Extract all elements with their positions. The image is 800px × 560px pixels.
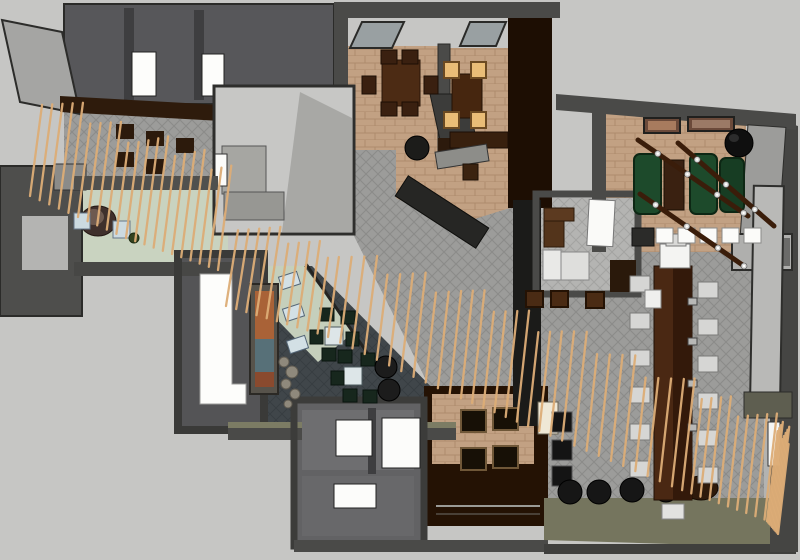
dining2-lit-chair — [444, 62, 459, 78]
rail-lamp-glow — [657, 152, 659, 154]
lounge-chair — [361, 353, 375, 366]
office-couch — [543, 250, 561, 280]
restroom-panel-3 — [334, 484, 376, 508]
dining1-chair — [402, 50, 418, 64]
floor-plan — [0, 0, 800, 560]
bdining-chair — [493, 446, 518, 468]
communal-chair-end — [662, 504, 684, 519]
rail-lamp-glow — [686, 173, 688, 175]
dining2-lit-chair — [444, 112, 459, 128]
left-door-opening — [22, 216, 68, 270]
pouf — [375, 356, 397, 378]
entry-top-wall — [74, 176, 218, 190]
wood-stool — [463, 164, 478, 180]
communal-chair — [630, 350, 650, 366]
stone — [286, 366, 298, 378]
bottom-wall-right — [544, 544, 796, 554]
lounge-chair — [310, 330, 323, 344]
dining1-chair — [362, 76, 376, 94]
rail-lamp-glow — [686, 225, 688, 227]
wall-seat — [552, 412, 572, 432]
dining1-chair — [424, 76, 438, 94]
communal-chair — [698, 282, 718, 298]
rail-lamp-glow — [654, 204, 656, 206]
white-door-1 — [132, 52, 156, 96]
dining1-chair — [381, 50, 397, 64]
lounge-chair — [322, 348, 336, 361]
pouf — [378, 379, 400, 401]
dining1-chair — [381, 102, 397, 116]
table-clamp — [688, 380, 697, 387]
dining1-chair — [402, 102, 418, 116]
rail-lamp-glow — [716, 194, 718, 196]
floor-plan-canvas — [0, 0, 800, 560]
restroom-panel-2 — [382, 418, 420, 468]
table-clamp — [688, 298, 697, 305]
white-stool — [744, 228, 761, 243]
office-couch — [561, 252, 589, 280]
top-wall — [334, 2, 560, 18]
communal-chair — [698, 467, 718, 483]
wood-stool — [551, 291, 568, 307]
black-stool — [558, 480, 582, 504]
white-stool — [656, 228, 673, 243]
bdining-chair — [461, 448, 486, 470]
white-bench — [645, 290, 661, 308]
rail-lamp-glow — [717, 247, 719, 249]
dining1-table — [382, 60, 420, 106]
round-table — [405, 136, 429, 160]
white-stool — [722, 228, 739, 243]
stone — [279, 357, 289, 367]
stone — [290, 389, 300, 399]
lounge-chair — [363, 390, 377, 403]
lounge-chair — [338, 350, 352, 363]
restroom-panel-1 — [336, 420, 372, 456]
rail-lamp-glow — [725, 183, 727, 185]
fireplace-art-accent — [255, 372, 274, 387]
office-desk — [544, 221, 564, 247]
wall-seat — [552, 440, 572, 460]
communal-chair — [698, 356, 718, 372]
wood-wall-right-dining — [508, 18, 552, 208]
rail-lamp-glow — [743, 265, 745, 267]
lounge-chair — [343, 389, 357, 402]
dining2-lit-chair — [471, 112, 486, 128]
lounge-table — [344, 367, 362, 385]
kitchen-counter-2 — [224, 192, 284, 220]
dining2-lit-chair — [471, 62, 486, 78]
black-stool — [587, 480, 611, 504]
stone — [284, 400, 292, 408]
rail-lamp-glow — [742, 212, 744, 214]
tl-chair — [176, 138, 194, 153]
tr-bar-counter — [632, 228, 654, 246]
wood-stool — [526, 291, 543, 307]
wall-art-canvas — [692, 120, 730, 128]
wall-art-canvas — [648, 121, 676, 130]
bottom-wall-left — [294, 540, 548, 552]
drum-pendant — [725, 129, 753, 157]
window-panel-1 — [350, 22, 404, 48]
lounge-chair — [331, 371, 344, 385]
table-clamp — [688, 338, 697, 345]
window-panel-2 — [460, 22, 506, 46]
podium — [660, 244, 690, 268]
wood-stool — [586, 292, 604, 308]
communal-chair — [630, 313, 650, 329]
rail-lamp-glow — [696, 158, 698, 160]
office-desk — [544, 208, 574, 221]
entry-plant — [129, 233, 139, 243]
office-white-panel — [587, 199, 615, 246]
rail-lamp-glow — [754, 208, 756, 210]
fireplace-art-upper — [255, 291, 274, 339]
communal-chair — [698, 319, 718, 335]
stone — [281, 379, 291, 389]
drum-highlight — [729, 134, 739, 142]
black-stool — [620, 478, 644, 502]
bdining-chair — [461, 410, 486, 432]
communal-chair — [630, 387, 650, 403]
